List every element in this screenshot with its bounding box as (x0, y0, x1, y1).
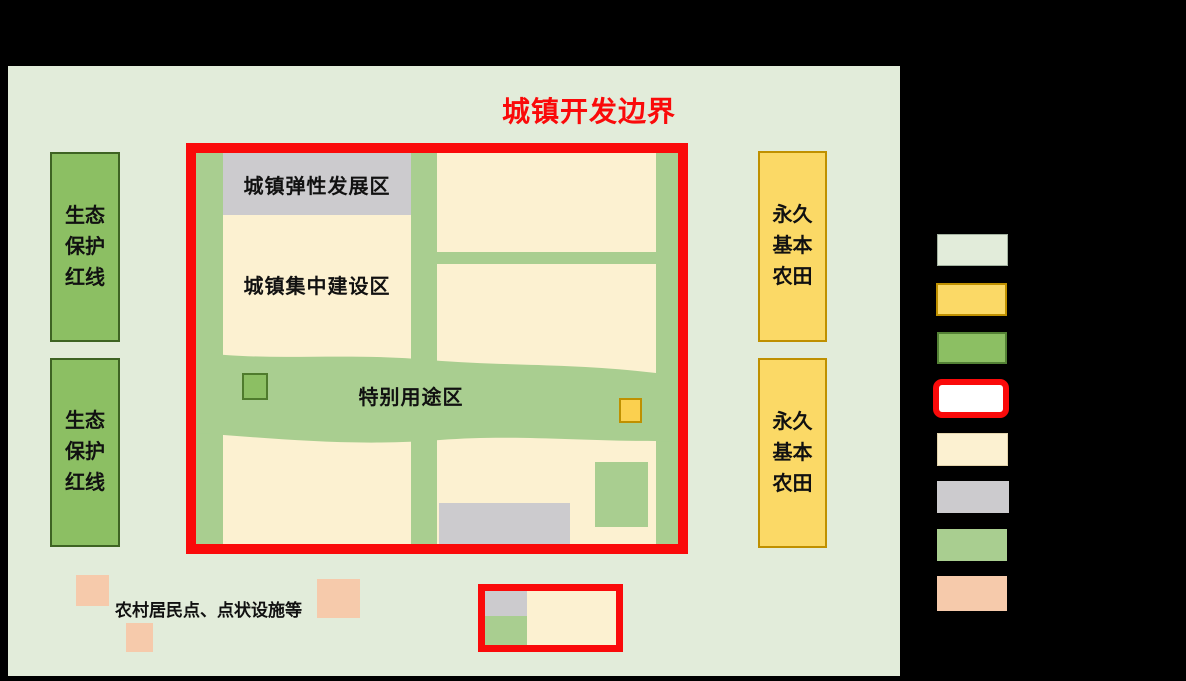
construction-block-upper-right (437, 153, 656, 252)
permanent-farmland-zone-bottom: 永久 基本 农田 (758, 358, 827, 548)
legend-swatch-peach (937, 576, 1007, 611)
legend-swatch-road-green (937, 529, 1007, 561)
legend-swatch-green (937, 332, 1007, 364)
eco-zone-label: 生态 保护 红线 (65, 406, 105, 499)
outparcel-gray-patch (485, 591, 527, 616)
flexible-development-zone-label: 城镇弹性发展区 (223, 170, 411, 200)
rural-settlement-label: 农村居民点、点状设施等 (115, 596, 375, 621)
farmland-zone-label: 永久 基本 农田 (773, 407, 813, 500)
permanent-farmland-zone-top: 永久 基本 农田 (758, 151, 827, 342)
legend-swatch-pale-green (937, 234, 1008, 266)
gray-patch-block (439, 503, 570, 544)
special-use-zone-label: 特别用途区 (311, 381, 511, 407)
legend-swatch-cream (937, 433, 1008, 466)
diagram-canvas: 城镇开发边界 生态 保护 红线 生态 保护 红线 永久 基本 农田 永久 基本 … (0, 0, 1186, 681)
legend-swatch-gray (937, 481, 1009, 513)
eco-zone-label: 生态 保护 红线 (65, 201, 105, 294)
outparcel-boundary-box (478, 584, 623, 652)
farmland-patch-square (619, 398, 642, 423)
concentrated-construction-zone-label: 城镇集中建设区 (223, 270, 411, 296)
legend-swatch-yellow (936, 283, 1007, 316)
eco-protection-redline-zone-top: 生态 保护 红线 (50, 152, 120, 342)
boundary-title: 城镇开发边界 (459, 96, 719, 130)
green-patch-square (242, 373, 268, 400)
outparcel-green-patch (485, 616, 527, 645)
rural-settlement-square (76, 575, 109, 606)
rural-settlement-square (126, 623, 153, 652)
farmland-zone-label: 永久 基本 农田 (773, 200, 813, 293)
legend-swatch-white-red-outline (933, 379, 1009, 418)
green-patch-block (595, 462, 648, 527)
eco-protection-redline-zone-bottom: 生态 保护 红线 (50, 358, 120, 547)
urban-development-boundary-box: 城镇弹性发展区 城镇集中建设区 特别用途区 (186, 143, 688, 554)
